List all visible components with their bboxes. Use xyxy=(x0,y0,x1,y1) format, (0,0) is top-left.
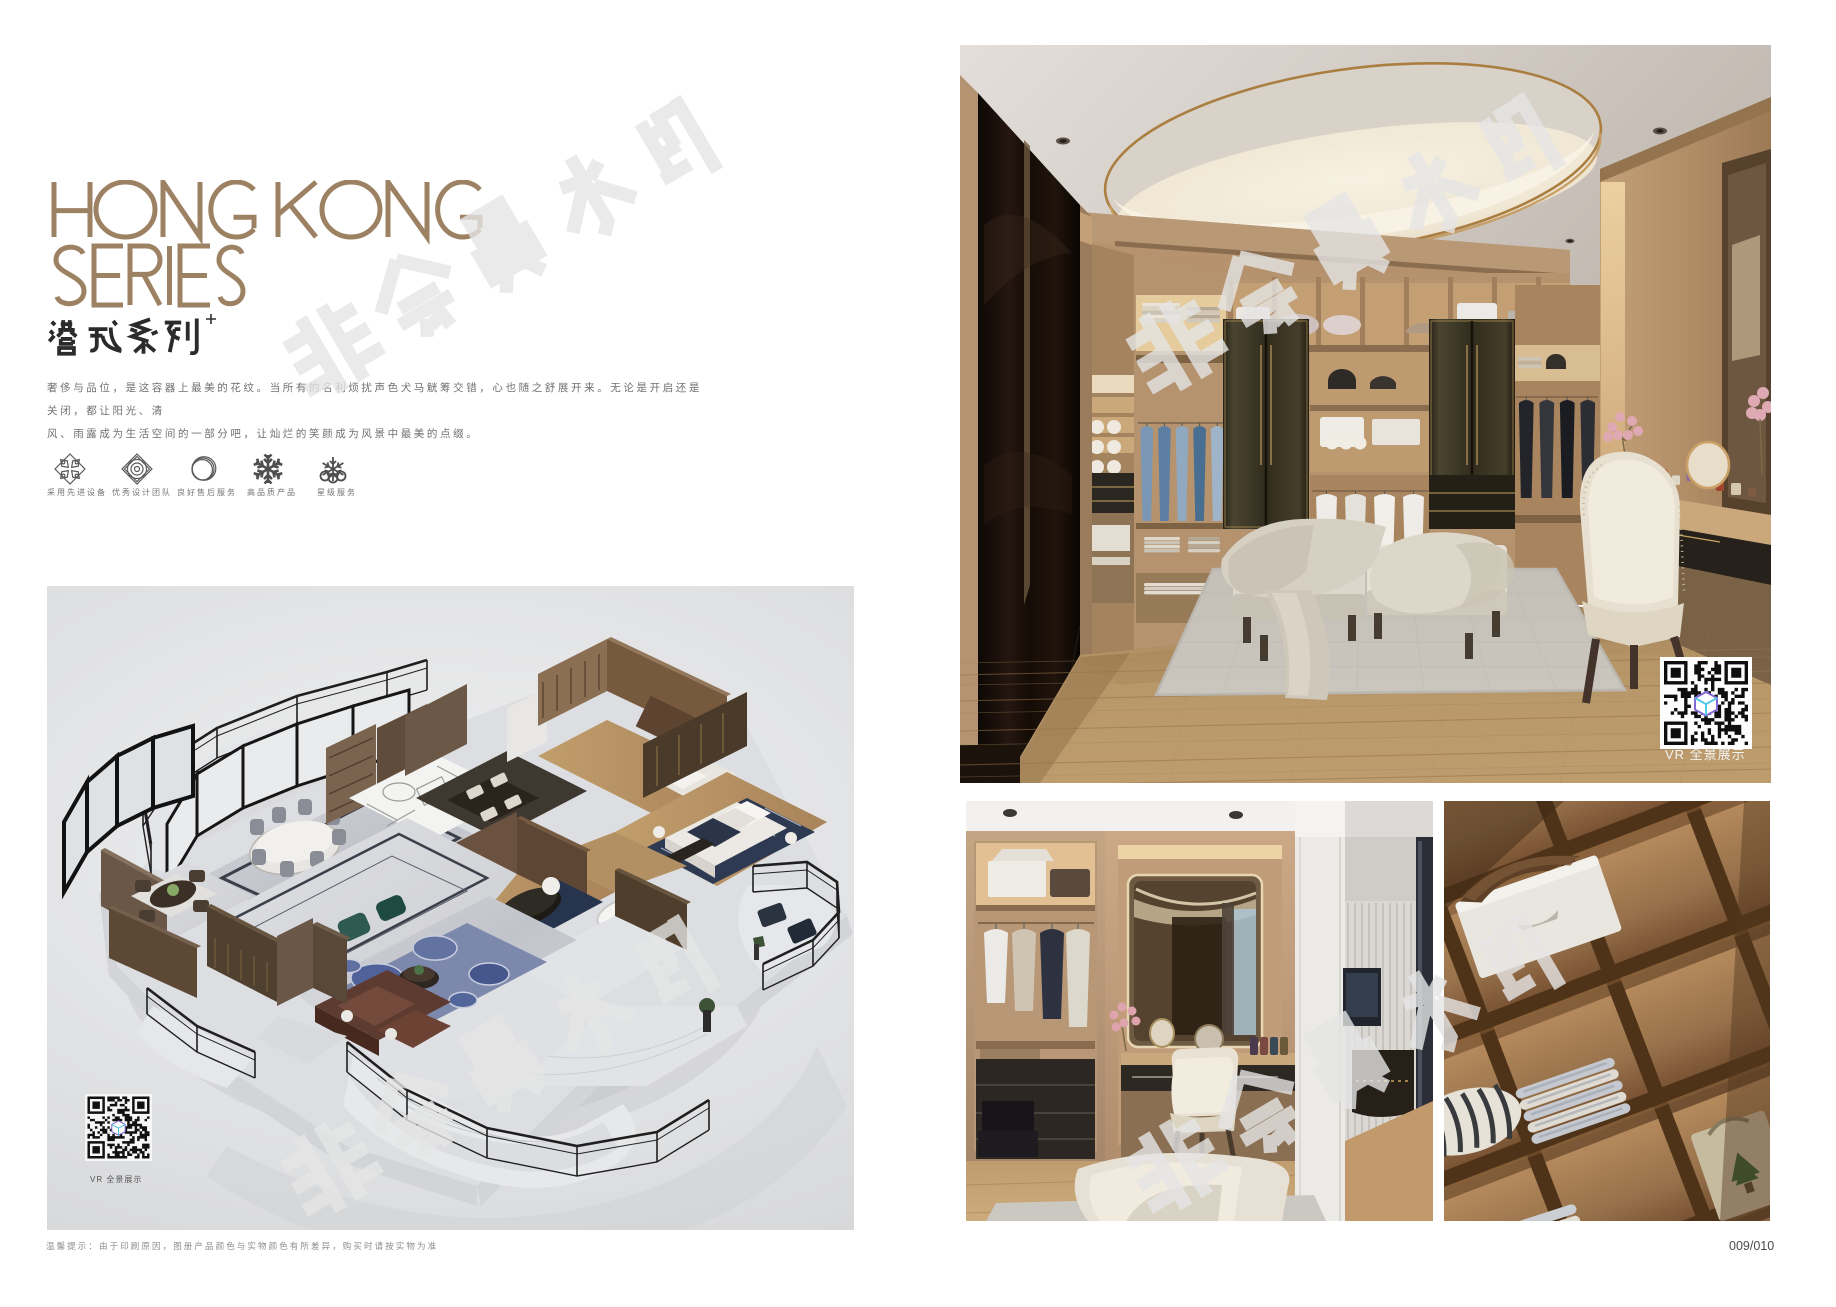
svg-text:VR 全景展示: VR 全景展示 xyxy=(1665,747,1746,762)
